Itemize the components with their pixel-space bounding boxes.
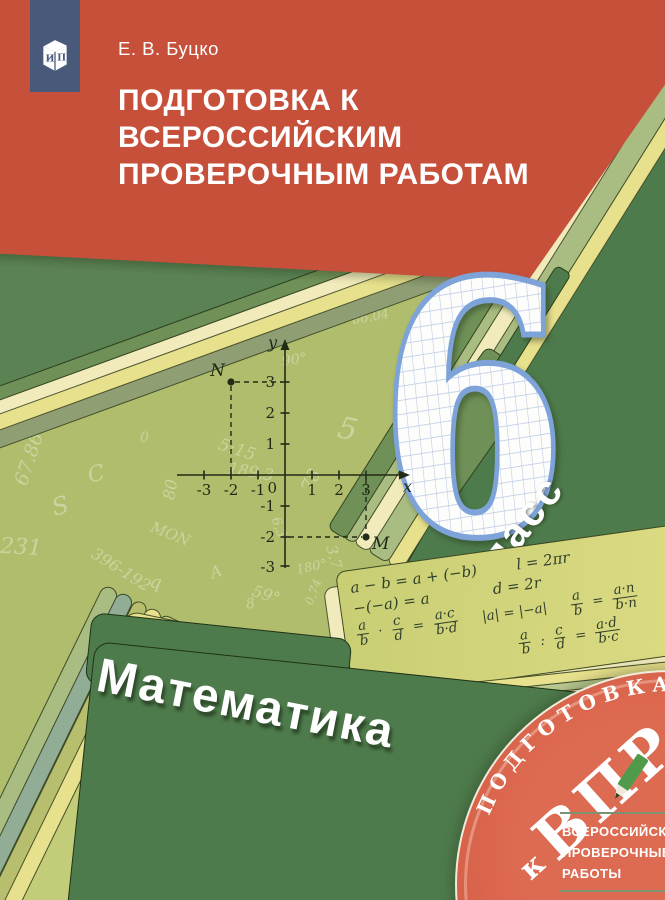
svg-text:N: N: [209, 361, 226, 381]
formula-token: [556, 606, 562, 607]
svg-text:-1: -1: [260, 497, 275, 515]
book-cover: 67.86C805:153,7m91.35231578189,3396-192M…: [0, 0, 665, 900]
watermark-glyph: 0: [140, 430, 149, 446]
publisher-logo-icon: И П: [41, 37, 69, 78]
formula-token: ab: [569, 589, 586, 619]
formula-token: [486, 566, 508, 569]
svg-text:2: 2: [334, 481, 344, 499]
watermark-glyph: q: [148, 571, 164, 594]
watermark-glyph: S: [49, 490, 72, 521]
formula-token: ·: [377, 623, 383, 639]
svg-text:x: x: [403, 477, 412, 496]
badge-rule-top: [560, 812, 665, 814]
formula-token: ab: [355, 619, 372, 649]
svg-text:-2: -2: [224, 481, 239, 499]
watermark-glyph: 396-192: [88, 544, 154, 595]
svg-text:И: И: [45, 53, 54, 64]
formula-token: [467, 618, 473, 619]
formula-token: [361, 645, 510, 666]
svg-text:-2: -2: [260, 528, 275, 546]
badge-caption-line-2: ПРОВЕРОЧНЫЕ: [562, 843, 665, 864]
svg-text:2: 2: [265, 404, 275, 422]
svg-text:П: П: [57, 52, 66, 63]
pencil-icon: [595, 750, 659, 819]
title-line-3: ПРОВЕРОЧНЫМ РАБОТАМ: [118, 156, 529, 193]
formula-token: =: [412, 617, 425, 634]
watermark-glyph: 231: [0, 534, 43, 561]
vpr-badge: ПОДГОТОВКА к ВПР ВСЕРОССИЙСКИЕ ПРОВЕРОЧН…: [455, 670, 665, 900]
formula-token: |a| = |−a|: [481, 600, 548, 625]
title-line-2: ВСЕРОССИЙСКИМ: [118, 119, 529, 156]
title-line-1: ПОДГОТОВКА К: [118, 82, 529, 119]
badge-caption-line-3: РАБОТЫ: [562, 864, 665, 885]
badge-caption-line-1: ВСЕРОССИЙСКИЕ: [562, 822, 665, 843]
coordinate-plane: -3 -2 -1 1 2 3 0 3 2 1 -1 -2 -3 N M x y: [163, 334, 419, 604]
svg-text:y: y: [267, 334, 278, 352]
badge-rule-bottom: [560, 890, 665, 892]
svg-text:-3: -3: [197, 481, 212, 499]
formula-token: [438, 590, 484, 596]
svg-text:1: 1: [307, 481, 317, 499]
formula-token: a·nb·n: [610, 581, 639, 613]
formula-token: ab: [517, 628, 534, 658]
formula-token: a·cb·d: [431, 606, 460, 638]
author-name: Е. В. Буцко: [118, 38, 219, 60]
formula-token: =: [574, 627, 587, 644]
svg-text:M: M: [371, 534, 390, 554]
watermark-glyph: C: [85, 460, 108, 489]
svg-text:3: 3: [265, 373, 275, 391]
formula-token: =: [591, 592, 604, 609]
publisher-banner: И П: [30, 0, 80, 92]
book-title: ПОДГОТОВКА К ВСЕРОССИЙСКИМ ПРОВЕРОЧНЫМ Р…: [118, 82, 529, 193]
svg-text:0: 0: [267, 479, 277, 497]
formula-token: a·db·c: [593, 616, 622, 648]
svg-text:-3: -3: [260, 558, 275, 576]
svg-text:1: 1: [265, 435, 275, 453]
formula-token: :: [539, 632, 546, 648]
formula-token: cd: [390, 614, 407, 644]
formula-token: cd: [552, 623, 569, 653]
svg-text:3: 3: [361, 481, 371, 499]
badge-caption: ВСЕРОССИЙСКИЕ ПРОВЕРОЧНЫЕ РАБОТЫ: [562, 822, 665, 884]
